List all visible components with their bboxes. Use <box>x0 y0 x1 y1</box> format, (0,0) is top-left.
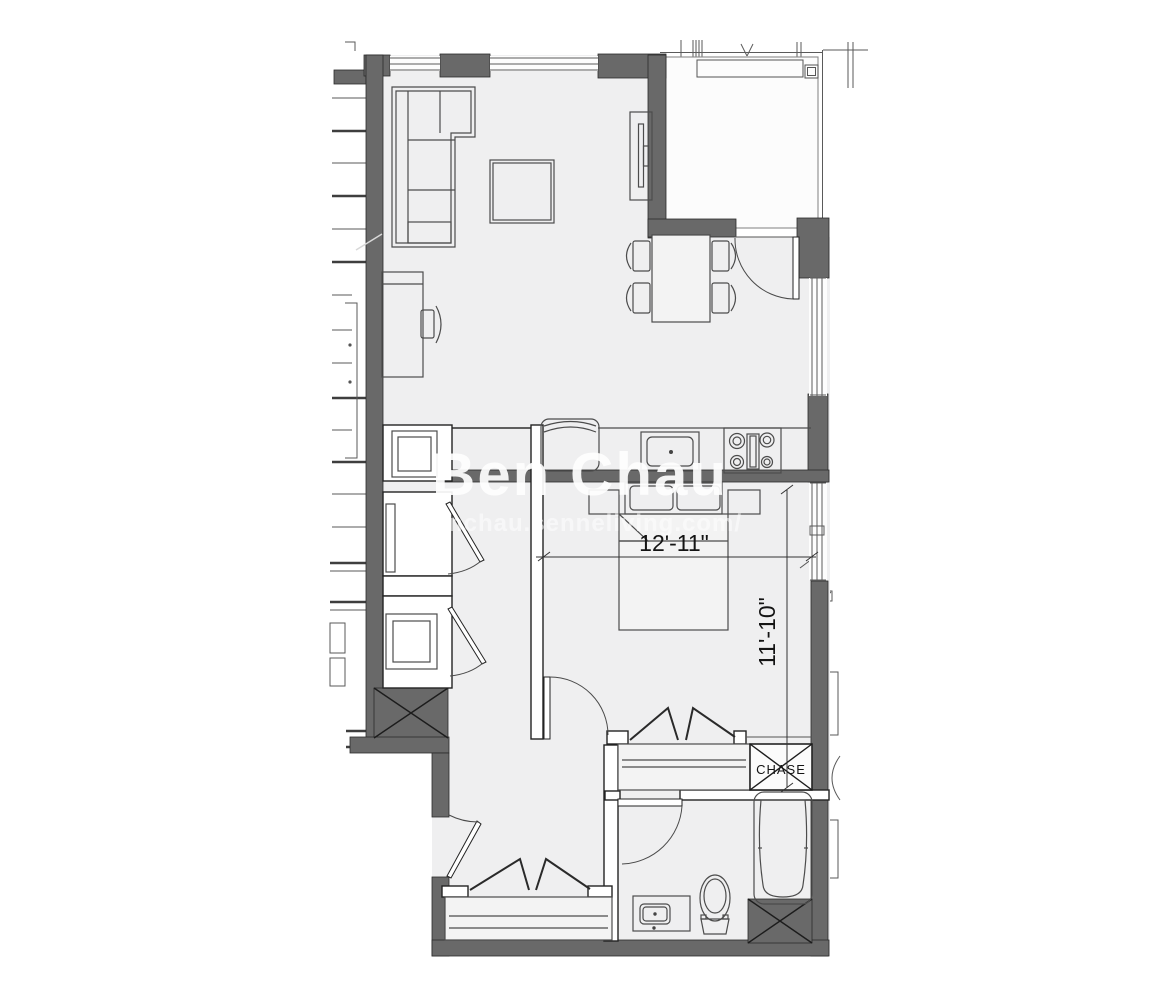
floor-plan-drawing <box>0 0 1155 989</box>
linen-closet <box>383 492 452 576</box>
terrace <box>660 50 823 235</box>
floor-plan-image: 12'-11" 11'-10" CHASE Ben Chau benchau.s… <box>0 0 1155 989</box>
dining-table <box>652 235 710 322</box>
hall-kitchen-wall <box>531 425 543 739</box>
dining-window <box>809 278 827 396</box>
chase-label: CHASE <box>746 762 816 777</box>
bedroom-width-dimension: 12'-11" <box>604 530 744 557</box>
entry-direction-arrow-icon <box>741 44 753 56</box>
utility-closet <box>383 425 452 481</box>
living-room-window <box>390 56 598 71</box>
bedroom-depth-dimension: 11'-10" <box>702 562 832 702</box>
